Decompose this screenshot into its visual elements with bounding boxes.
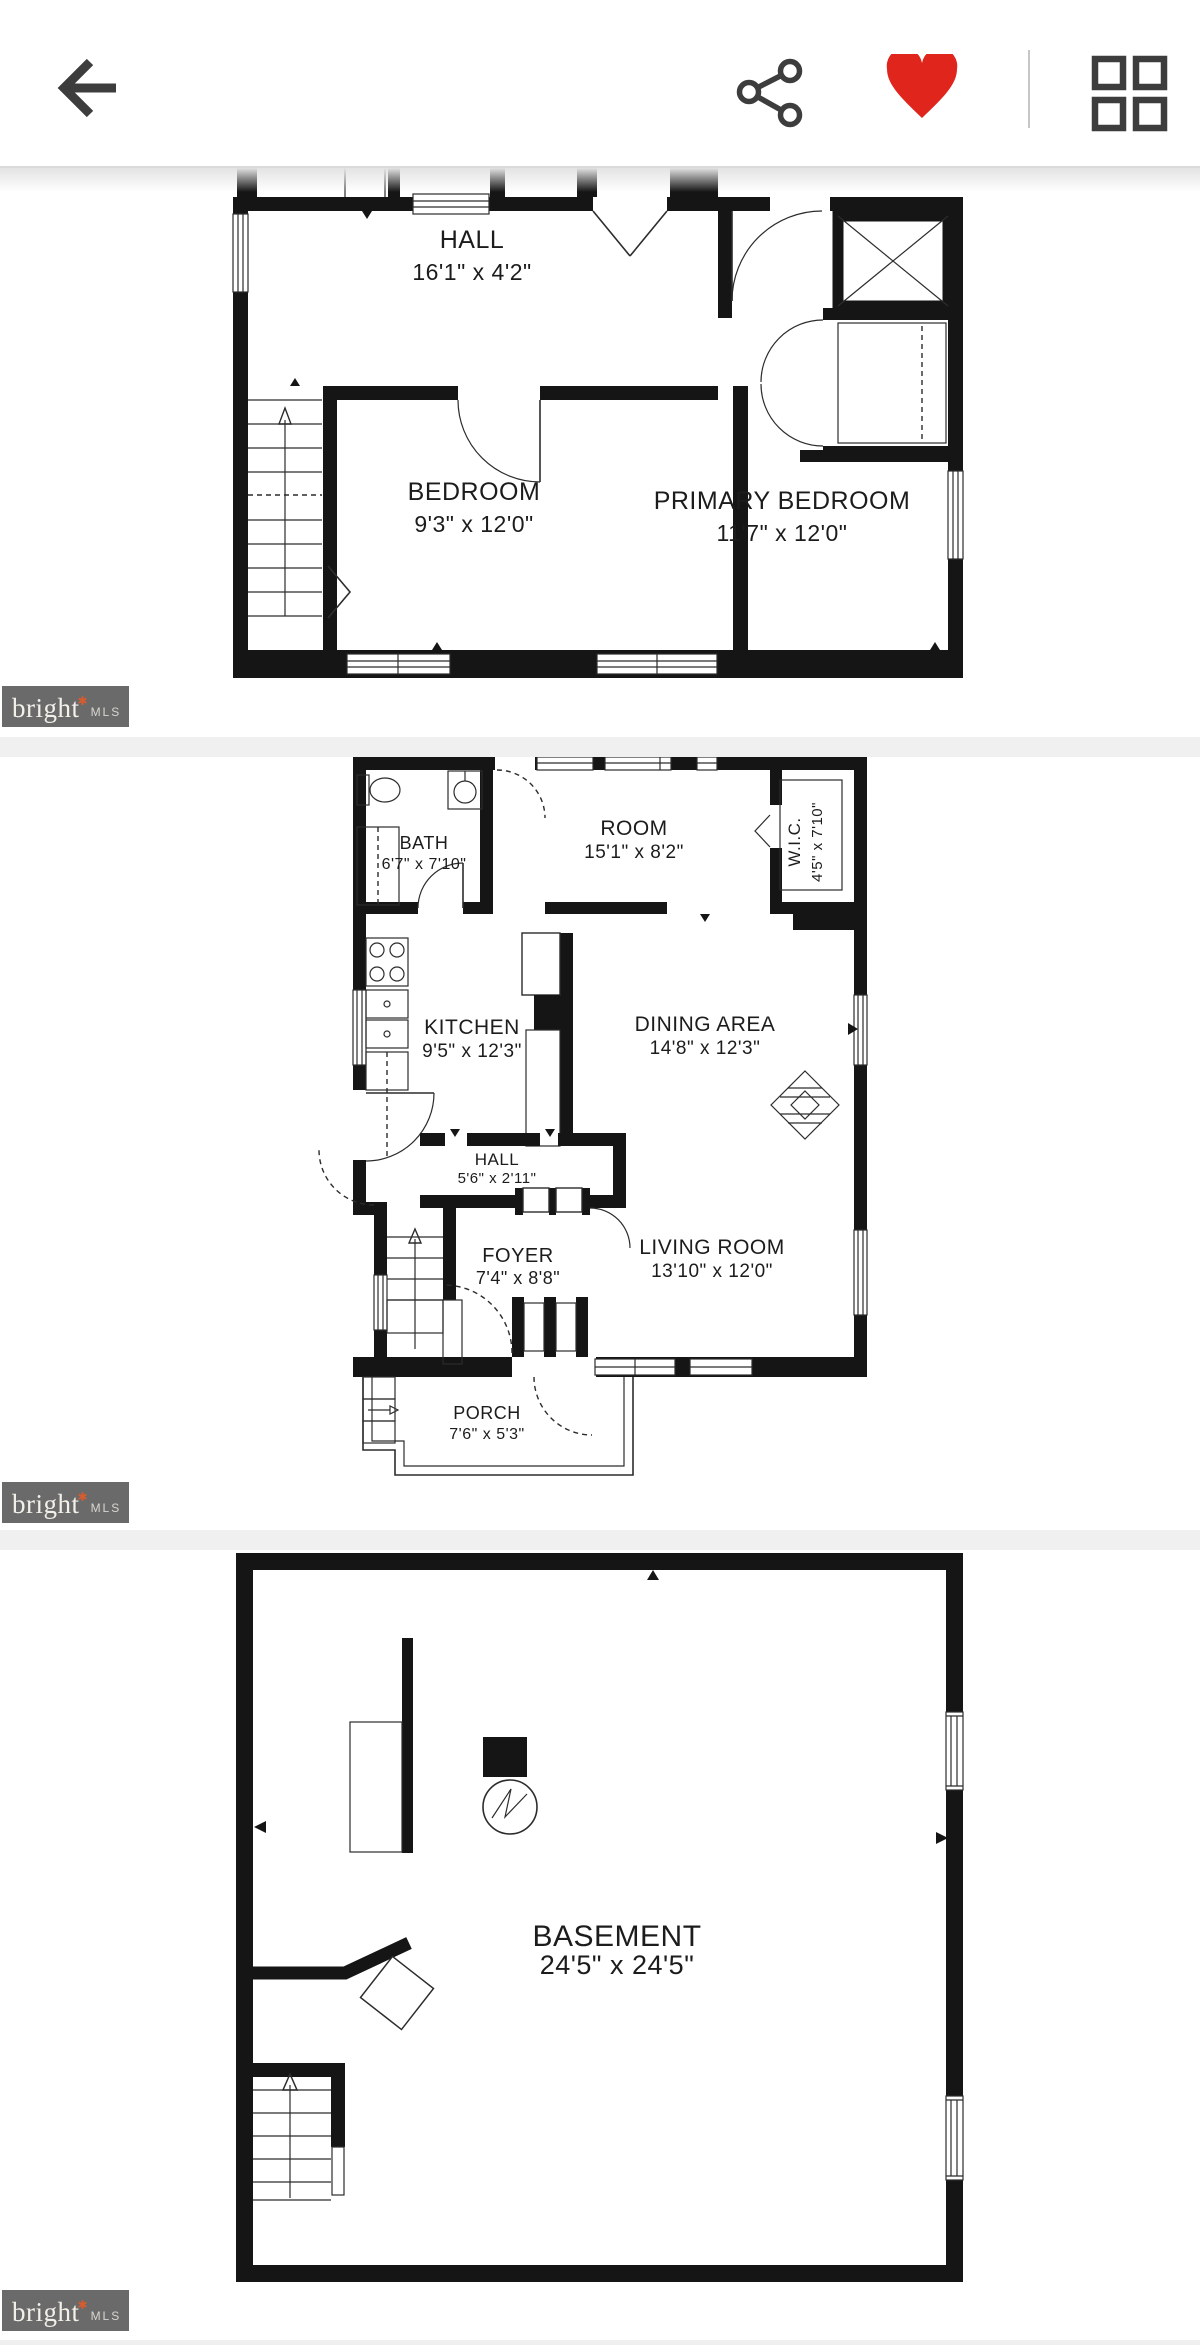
room-dims: 4'5" x 7'10" bbox=[809, 802, 826, 882]
room-dims: 7'6" x 5'3" bbox=[449, 1426, 524, 1443]
brightmls-watermark: bright✱MLS bbox=[2, 2290, 129, 2331]
brightmls-star-icon: ✱ bbox=[78, 694, 88, 708]
room-dims: 9'3" x 12'0" bbox=[414, 511, 533, 537]
room-dims: 16'1" x 4'2" bbox=[412, 259, 531, 285]
staircase bbox=[248, 400, 322, 616]
floor-plan-upper-section[interactable]: HALL 16'1" x 4'2" BEDROOM 9'3" x 12'0" P… bbox=[0, 168, 1200, 737]
section-top-shadow bbox=[0, 168, 1200, 192]
brightmls-watermark: bright✱MLS bbox=[2, 686, 129, 727]
brightmls-logo-text: bright bbox=[12, 696, 80, 721]
favorite-button[interactable] bbox=[885, 54, 959, 122]
room-dims: 6'7" x 7'10" bbox=[382, 856, 467, 873]
brightmls-star-icon: ✱ bbox=[78, 2298, 88, 2312]
brightmls-mls-text: MLS bbox=[91, 703, 122, 721]
room-label: PRIMARY BEDROOM bbox=[654, 487, 911, 515]
interior-features bbox=[250, 1638, 537, 2029]
room-label: W.I.C. bbox=[785, 817, 804, 866]
share-button[interactable] bbox=[733, 55, 807, 129]
room-dims: 11'7" x 12'0" bbox=[717, 520, 848, 546]
heart-icon bbox=[885, 54, 959, 122]
room-label: BASEMENT bbox=[532, 1920, 701, 1953]
brightmls-logo-text: bright bbox=[12, 1492, 80, 1517]
back-button[interactable] bbox=[48, 48, 128, 128]
room-dims: 7'4" x 8'8" bbox=[476, 1268, 560, 1288]
floor-plan-upper-drawing: HALL 16'1" x 4'2" BEDROOM 9'3" x 12'0" P… bbox=[0, 168, 1200, 737]
room-label: HALL bbox=[475, 1150, 520, 1169]
doors bbox=[328, 211, 823, 618]
app-header bbox=[0, 0, 1200, 168]
brightmls-mls-text: MLS bbox=[91, 1499, 122, 1517]
floor-plan-main-section[interactable]: BATH 6'7" x 7'10" ROOM 15'1" x 8'2" W.I.… bbox=[0, 757, 1200, 1530]
room-label: PORCH bbox=[453, 1403, 521, 1423]
room-label: ROOM bbox=[600, 817, 667, 840]
room-label: BEDROOM bbox=[408, 478, 541, 506]
gallery-button[interactable] bbox=[1090, 54, 1168, 132]
floor-plan-basement-section[interactable]: BASEMENT 24'5" x 24'5" bright✱MLS bbox=[0, 1550, 1200, 2340]
outer-walls bbox=[236, 1553, 963, 2282]
room-label: BATH bbox=[400, 833, 449, 853]
room-label: KITCHEN bbox=[424, 1016, 520, 1039]
dimension-markers bbox=[254, 1570, 948, 1844]
brightmls-mls-text: MLS bbox=[91, 2307, 122, 2325]
grid-icon bbox=[1090, 54, 1168, 132]
brightmls-star-icon: ✱ bbox=[78, 1490, 88, 1504]
ceiling-fan-symbol bbox=[771, 1071, 839, 1139]
room-label: LIVING ROOM bbox=[639, 1236, 785, 1259]
share-icon bbox=[733, 55, 807, 129]
room-dims: 13'10" x 12'0" bbox=[651, 1261, 773, 1282]
room-label: HALL bbox=[440, 226, 505, 254]
floor-plan-main-drawing: BATH 6'7" x 7'10" ROOM 15'1" x 8'2" W.I.… bbox=[0, 757, 1200, 1530]
brightmls-logo-text: bright bbox=[12, 2300, 80, 2325]
brightmls-watermark: bright✱MLS bbox=[2, 1482, 129, 1523]
staircase bbox=[250, 2063, 345, 2200]
arrow-left-icon bbox=[48, 48, 128, 128]
floor-plan-basement-drawing: BASEMENT 24'5" x 24'5" bbox=[0, 1550, 1200, 2340]
room-dims: 9'5" x 12'3" bbox=[422, 1041, 522, 1062]
room-dims: 5'6" x 2'11" bbox=[458, 1170, 537, 1187]
room-dims: 24'5" x 24'5" bbox=[540, 1950, 695, 1980]
bathroom-fixtures bbox=[838, 216, 948, 443]
room-label: FOYER bbox=[482, 1245, 553, 1267]
room-label: DINING AREA bbox=[635, 1013, 776, 1036]
staircase bbox=[319, 1150, 462, 1364]
header-divider bbox=[1028, 50, 1030, 128]
room-dims: 15'1" x 8'2" bbox=[584, 842, 684, 863]
room-dims: 14'8" x 12'3" bbox=[650, 1038, 761, 1059]
